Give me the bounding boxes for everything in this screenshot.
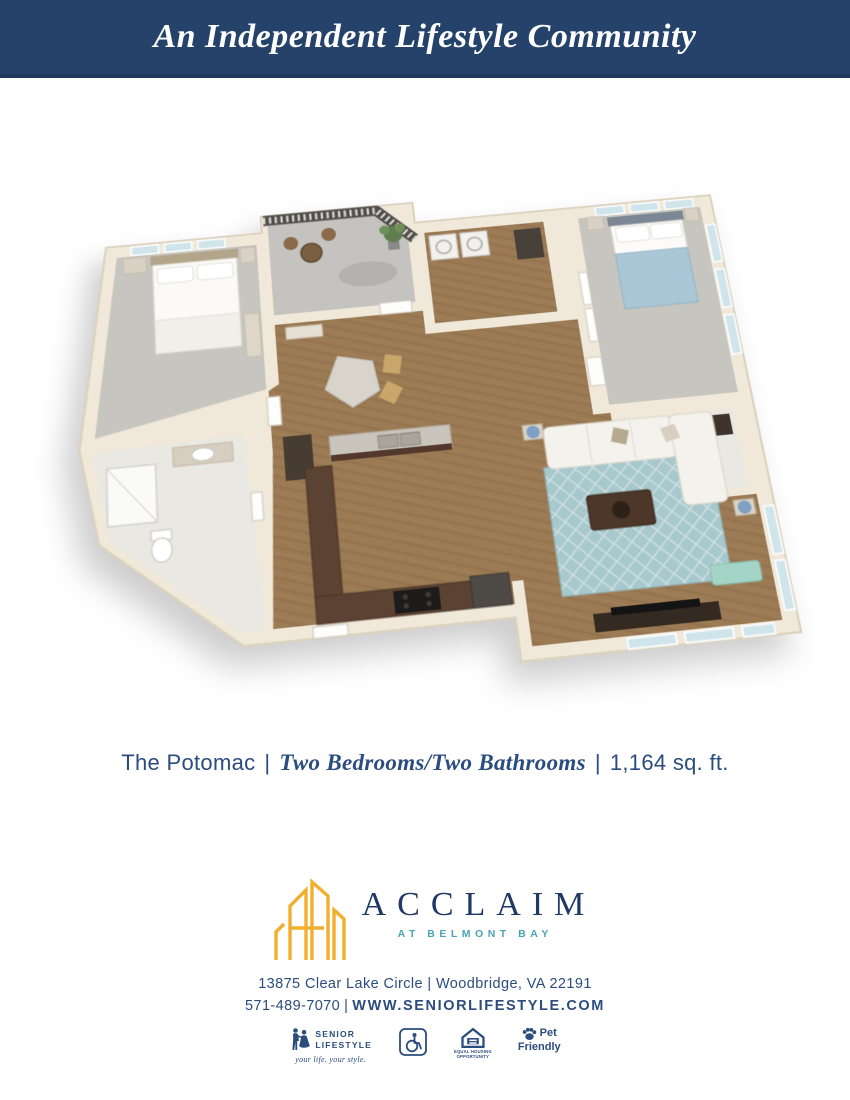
senior-lifestyle-line1: SENIOR — [315, 1029, 372, 1040]
senior-lifestyle-logo: SENIOR LIFESTYLE your life. your style. — [289, 1027, 372, 1064]
website-url: WWW.SENIORLIFESTYLE.COM — [352, 998, 605, 1014]
address-line: 13875 Clear Lake Circle | Woodbridge, VA… — [0, 974, 850, 996]
caption-separator: | — [264, 750, 270, 775]
header-banner: An Independent Lifestyle Community — [0, 0, 850, 78]
contact-block: 13875 Clear Lake Circle | Woodbridge, VA… — [0, 974, 850, 1018]
phone-number: 571-489-7070 — [245, 998, 340, 1014]
pet-friendly-badge: Pet Friendly — [518, 1027, 561, 1055]
plan-name: The Potomac — [121, 750, 255, 775]
dancing-couple-icon — [289, 1027, 311, 1053]
senior-lifestyle-tagline: your life. your style. — [295, 1055, 366, 1064]
equal-housing-badge: EQUAL HOUSING OPPORTUNITY — [454, 1027, 492, 1060]
phone-web-line: 571-489-7070|WWW.SENIORLIFESTYLE.COM — [0, 996, 850, 1018]
accessibility-badge — [398, 1027, 428, 1057]
equal-housing-line2: OPPORTUNITY — [454, 1054, 492, 1059]
paw-icon — [522, 1027, 537, 1041]
page-title: An Independent Lifestyle Community — [153, 18, 696, 56]
caption-separator: | — [595, 750, 601, 775]
logo-name: ACCLAIM — [362, 888, 596, 922]
floor-plan — [64, 159, 822, 746]
plan-bed-bath: Two Bedrooms/Two Bathrooms — [279, 750, 585, 775]
senior-lifestyle-line2: LIFESTYLE — [315, 1040, 372, 1051]
flyer-page: An Independent Lifestyle Community — [0, 0, 850, 1100]
equal-housing-house-icon — [460, 1027, 486, 1048]
wheelchair-icon — [398, 1027, 428, 1057]
badge-row: SENIOR LIFESTYLE your life. your style. — [0, 1027, 850, 1064]
floor-plan-caption: The Potomac|Two Bedrooms/Two Bathrooms|1… — [0, 750, 850, 776]
floor-plan-illustration — [64, 159, 822, 746]
community-logo: ACCLAIM AT BELMONT BAY — [0, 866, 850, 962]
pet-line1: Pet — [540, 1027, 557, 1041]
pet-line2: Friendly — [518, 1041, 561, 1055]
contact-separator: | — [344, 998, 348, 1014]
buildings-icon — [266, 866, 350, 962]
plan-area: 1,164 sq. ft. — [610, 750, 729, 775]
logo-location: AT BELMONT BAY — [398, 928, 553, 940]
